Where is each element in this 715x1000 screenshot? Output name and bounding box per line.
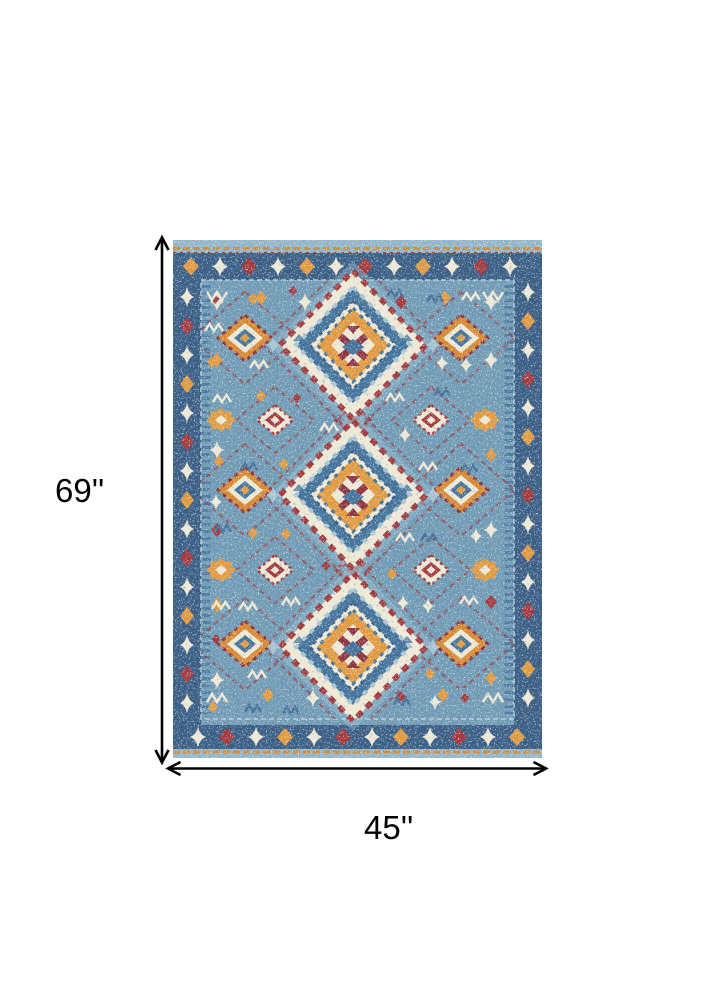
svg-text:45'': 45'' — [364, 809, 413, 846]
svg-text:69'': 69'' — [55, 472, 104, 509]
